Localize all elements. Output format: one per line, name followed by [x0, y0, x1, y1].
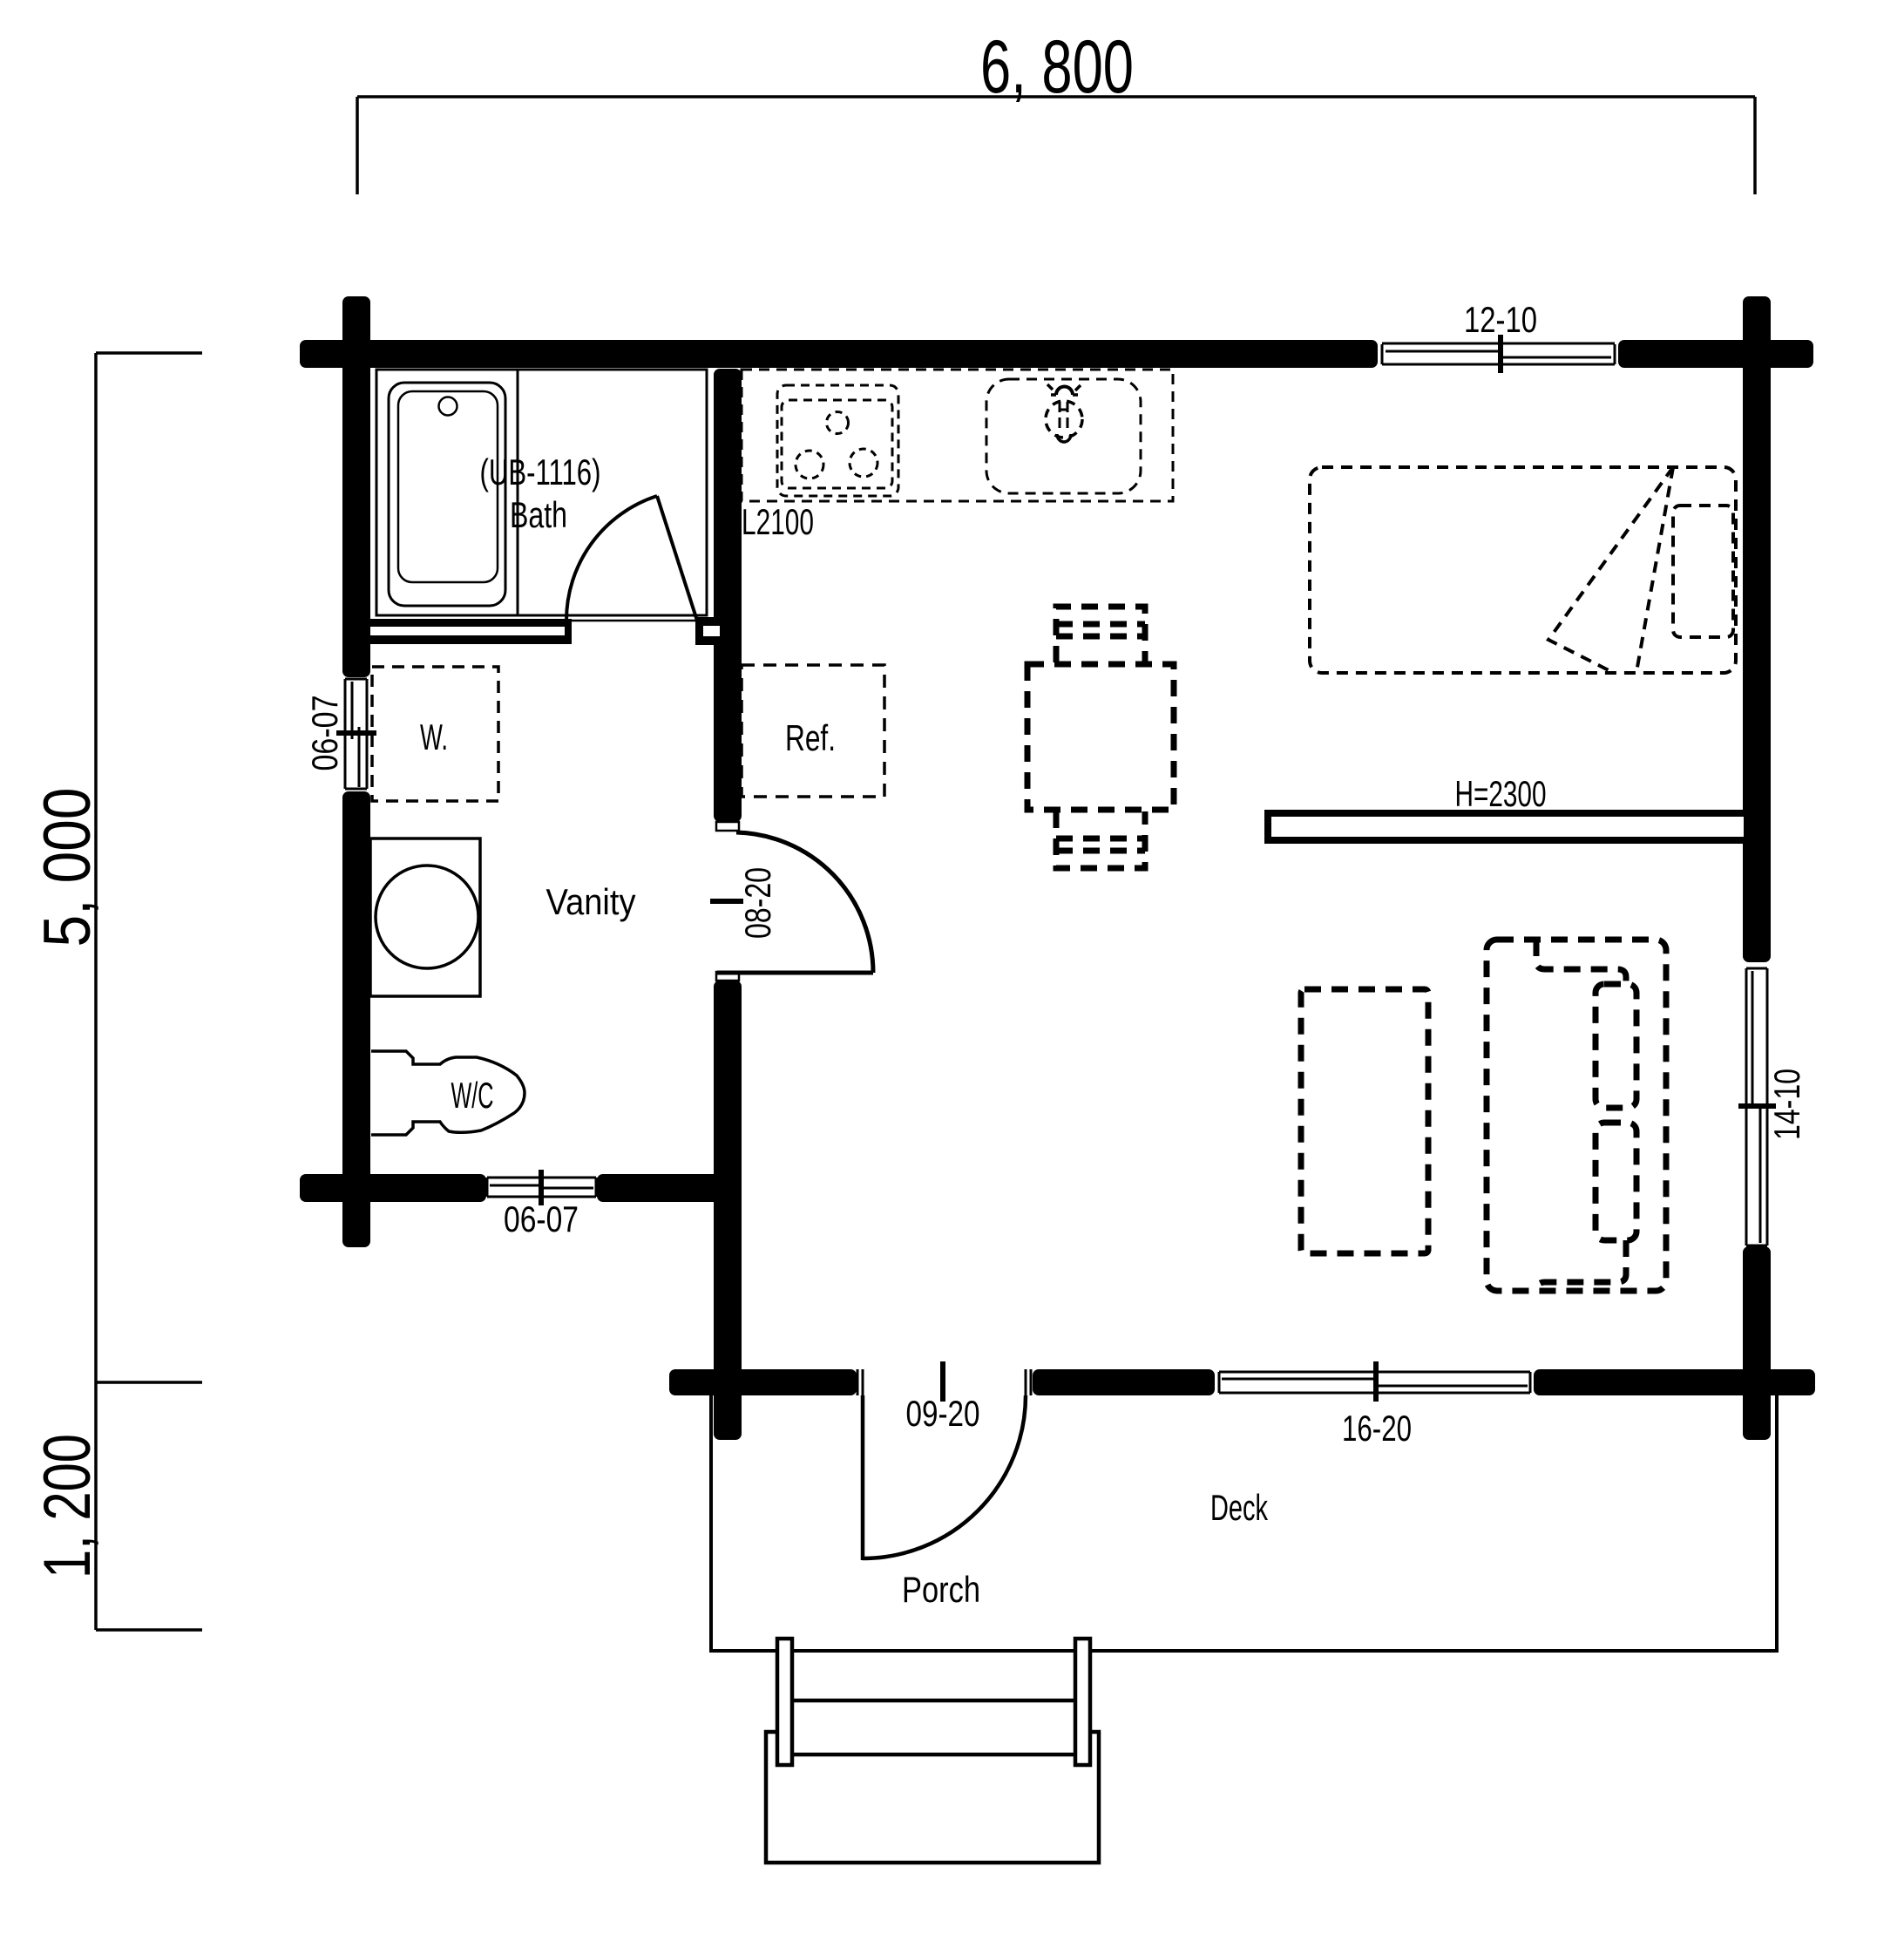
svg-text:16-20: 16-20 — [1342, 1408, 1412, 1449]
svg-text:Ref.: Ref. — [785, 717, 836, 758]
svg-text:12-10: 12-10 — [1464, 299, 1537, 340]
svg-text:(UB-1116): (UB-1116) — [480, 451, 601, 492]
svg-text:Vanity: Vanity — [546, 881, 636, 922]
svg-text:W.: W. — [420, 716, 448, 757]
svg-text:Porch: Porch — [902, 1569, 980, 1610]
svg-text:06-07: 06-07 — [304, 696, 345, 771]
svg-text:6, 800: 6, 800 — [980, 25, 1134, 109]
svg-text:14-10: 14-10 — [1766, 1069, 1807, 1140]
svg-text:Deck: Deck — [1210, 1487, 1269, 1528]
svg-text:06-07: 06-07 — [504, 1198, 579, 1239]
svg-text:L2100: L2100 — [742, 501, 814, 542]
svg-text:W/C: W/C — [451, 1075, 494, 1116]
svg-text:08-20: 08-20 — [737, 867, 778, 939]
svg-text:5, 000: 5, 000 — [30, 788, 105, 947]
svg-text:H=2300: H=2300 — [1455, 773, 1547, 814]
svg-text:Bath: Bath — [510, 494, 567, 535]
svg-text:1, 200: 1, 200 — [30, 1434, 105, 1578]
svg-text:09-20: 09-20 — [906, 1393, 980, 1434]
